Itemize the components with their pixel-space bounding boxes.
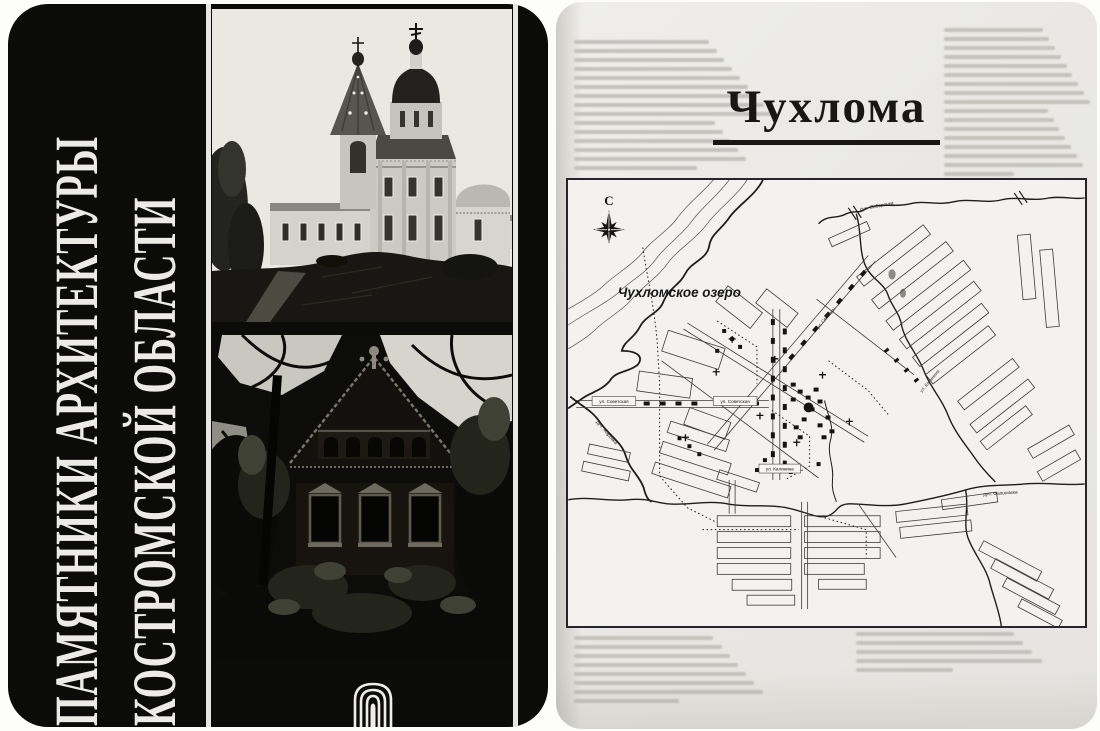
stream-label-left: руч. Жаровка: [594, 419, 619, 446]
wooden-house-photo: [212, 335, 512, 658]
building-marks: [628, 270, 919, 474]
street-label-sovetskaya-1: ул. Советская: [599, 399, 629, 404]
cover-title-line-1: ПАМЯТНИКИ АРХИТЕКТУРЫ: [42, 136, 113, 726]
page-bottom-shade: [556, 669, 1097, 729]
page-title: Чухлома: [713, 80, 941, 145]
street-label-svobody: ул. Свободы: [815, 306, 836, 330]
rivers: [568, 197, 1085, 626]
stream-label-right: руч. Фалиновка: [982, 489, 1018, 497]
cover-divider-right: [513, 4, 518, 727]
lake-contours: [568, 180, 747, 349]
street-label-kalinina-box: ул. Калинина: [766, 467, 794, 472]
church-cross-marks: [682, 336, 853, 446]
ponds: [888, 269, 905, 298]
stream-label-top: руч. Соборенка: [859, 200, 895, 213]
book-cover: ПАМЯТНИКИ АРХИТЕКТУРЫ КОСТРОМСКОЙ ОБЛАСТ…: [8, 4, 548, 727]
church-photo: [212, 9, 512, 322]
cover-divider-left: [206, 4, 211, 727]
town-plan-map: С Чухломское озеро ул. Советская ул. Сов…: [566, 178, 1087, 628]
wooden-house-photo-art: [212, 335, 512, 658]
compass-rose: [593, 210, 625, 245]
publisher-arch-logo: [348, 678, 398, 727]
cover-title-line-2: КОСТРОМСКОЙ ОБЛАСТИ: [120, 197, 191, 726]
scanned-book-spread: ПАМЯТНИКИ АРХИТЕКТУРЫ КОСТРОМСКОЙ ОБЛАСТ…: [0, 0, 1100, 731]
compass-north-label: С: [604, 193, 613, 208]
street-label-sovetskaya-2: ул. Советская: [720, 399, 750, 404]
map-art: С Чухломское озеро ул. Советская ул. Сов…: [568, 180, 1085, 626]
book-page: Чухлома: [556, 2, 1097, 729]
street-lines: [576, 255, 914, 609]
lake-label: Чухломское озеро: [618, 285, 741, 300]
church-photo-art: [212, 9, 512, 322]
lake-shoreline: [568, 180, 763, 502]
